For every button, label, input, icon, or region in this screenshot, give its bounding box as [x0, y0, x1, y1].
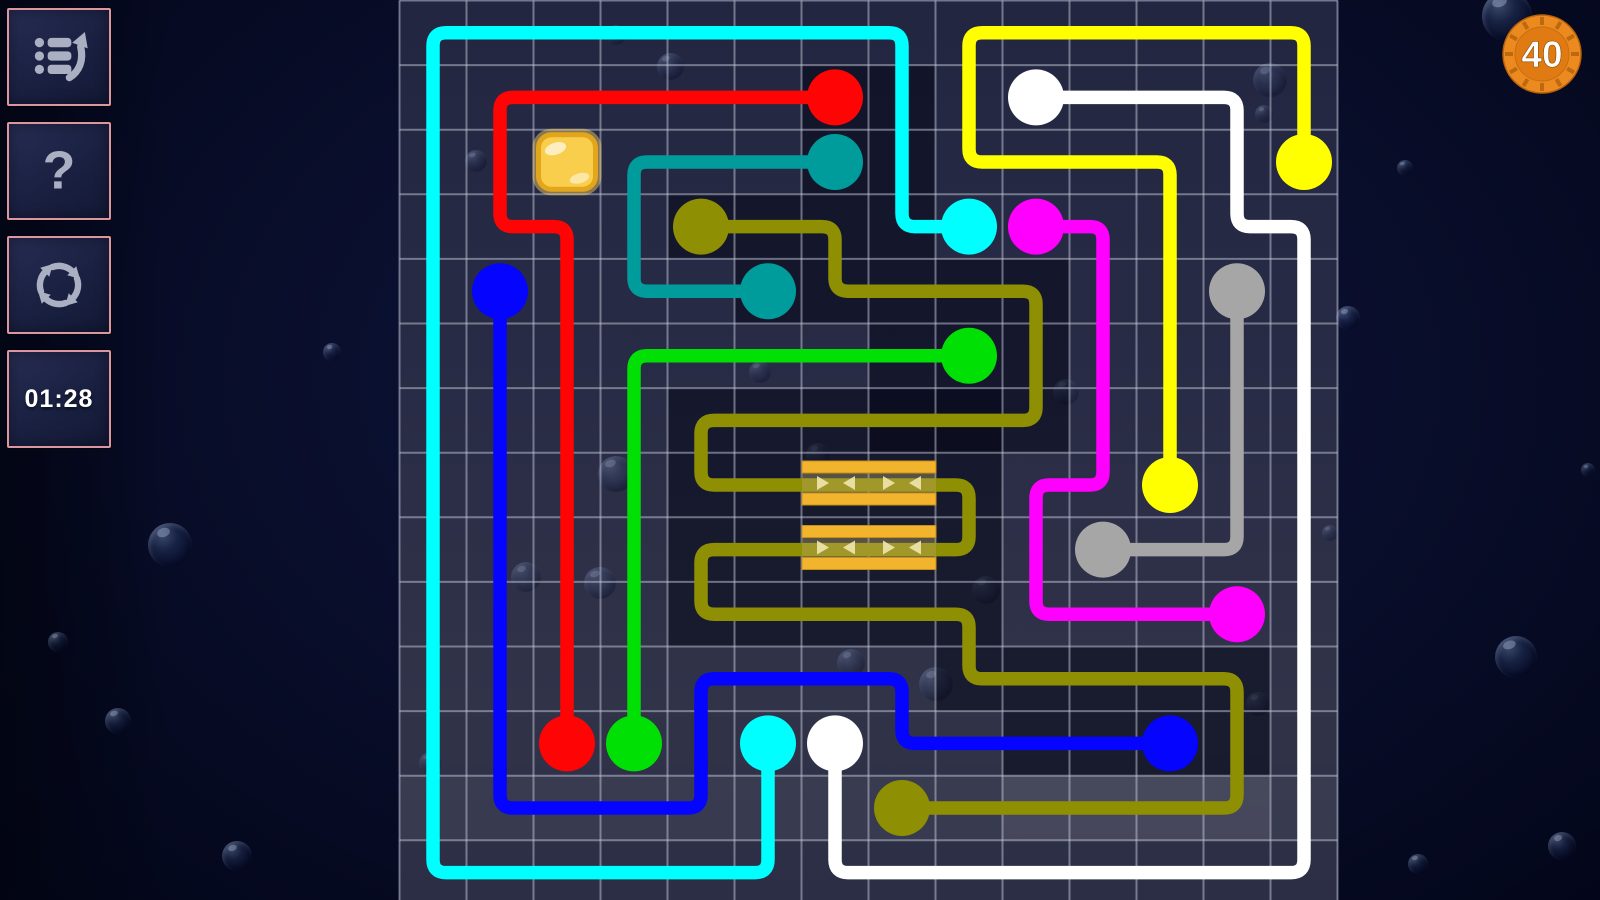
magenta-dot-2[interactable]: [1209, 586, 1265, 642]
stripe-gold-bar: [802, 461, 936, 473]
svg-text:?: ?: [43, 141, 76, 201]
stripe-gold-bar: [802, 493, 936, 505]
game-screen: ? 01:28: [0, 0, 1600, 900]
green-dot-1[interactable]: [941, 328, 997, 384]
cyan-dot-1[interactable]: [740, 715, 796, 771]
menu-button[interactable]: [7, 8, 111, 106]
olive-dot-2[interactable]: [874, 780, 930, 836]
red-dot-1[interactable]: [807, 69, 863, 125]
refresh-icon: [25, 251, 93, 319]
teal-dot-1[interactable]: [807, 134, 863, 190]
green-dot-2[interactable]: [606, 715, 662, 771]
teal-dot-2[interactable]: [740, 263, 796, 319]
bonus-tile: [539, 135, 596, 190]
timer-coin-icon: 40: [1502, 13, 1582, 95]
timer-display: 01:28: [7, 350, 111, 448]
stripe-gold-bar: [802, 558, 936, 570]
red-dot-2[interactable]: [539, 715, 595, 771]
badge-count: 40: [1521, 34, 1562, 75]
olive-dot-1[interactable]: [673, 199, 729, 255]
cyan-dot-2[interactable]: [941, 199, 997, 255]
gray-dot-2[interactable]: [1075, 522, 1131, 578]
yellow-dot-2[interactable]: [1142, 457, 1198, 513]
moves-counter-badge: 40: [1502, 13, 1582, 95]
puzzle-board[interactable]: [0, 0, 1600, 900]
magenta-dot-1[interactable]: [1008, 199, 1064, 255]
blue-dot-1[interactable]: [472, 263, 528, 319]
restart-button[interactable]: [7, 236, 111, 334]
yellow-dot-1[interactable]: [1276, 134, 1332, 190]
white-dot-2[interactable]: [807, 715, 863, 771]
question-icon: ?: [26, 138, 92, 204]
white-dot-1[interactable]: [1008, 69, 1064, 125]
list-arrow-icon: [26, 24, 92, 90]
blue-dot-2[interactable]: [1142, 715, 1198, 771]
timer-value: 01:28: [25, 385, 94, 414]
stripe-gold-bar: [802, 526, 936, 538]
hint-button[interactable]: ?: [7, 122, 111, 220]
gray-dot-1[interactable]: [1209, 263, 1265, 319]
